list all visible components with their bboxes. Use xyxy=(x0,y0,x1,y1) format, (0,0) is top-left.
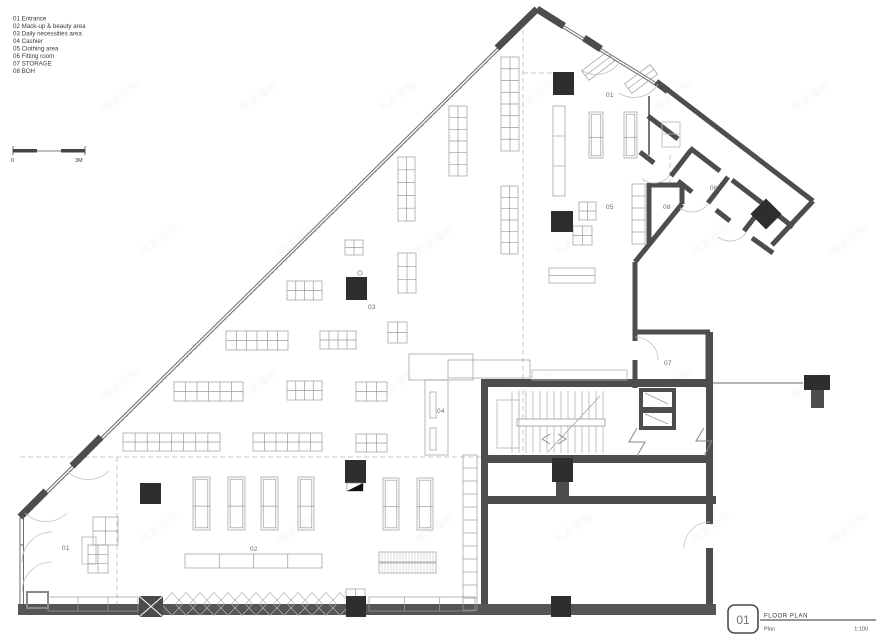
svg-text:知末案例: 知末案例 xyxy=(99,366,143,403)
svg-text:知末案例: 知末案例 xyxy=(99,78,143,115)
column-grid-dashed-lines xyxy=(20,22,670,605)
floor-plan-page: 知末案例知末案例知末案例知末案例知末案例知末案例知末案例知末案例知末案例知末案例… xyxy=(0,0,880,643)
svg-text:知末案例: 知末案例 xyxy=(237,78,281,115)
svg-text:知末案例: 知末案例 xyxy=(413,222,457,259)
room-label: 08 xyxy=(663,204,671,211)
title-block: 01 FLOOR PLAN Plan 1:100 xyxy=(728,605,876,633)
legend-item: 04 Cashier xyxy=(13,38,43,45)
legend-item: 01 Entrance xyxy=(13,16,47,23)
svg-text:知末案例: 知末案例 xyxy=(827,222,871,259)
drawing-subtitle: Plan xyxy=(764,627,775,633)
drawing-number: 01 xyxy=(736,613,750,627)
room-label: 01 xyxy=(62,545,70,552)
legend-item: 06 Fitting room xyxy=(13,53,54,60)
svg-text:知末案例: 知末案例 xyxy=(375,366,419,403)
svg-text:知末案例: 知末案例 xyxy=(551,510,595,547)
room-label: 06 xyxy=(710,185,718,192)
room-label: 07 xyxy=(664,360,672,367)
floor-plan-drawing: 知末案例知末案例知末案例知末案例知末案例知末案例知末案例知末案例知末案例知末案例… xyxy=(0,0,880,643)
room-label: 03 xyxy=(368,304,376,311)
room-label: 01 xyxy=(606,92,614,99)
scale-end-label: 3M xyxy=(75,158,83,164)
svg-text:知末案例: 知末案例 xyxy=(689,222,733,259)
svg-text:知末案例: 知末案例 xyxy=(137,510,181,547)
legend-item: 03 Daily necessities area xyxy=(13,31,82,38)
room-label: 05 xyxy=(606,204,614,211)
svg-text:知末案例: 知末案例 xyxy=(137,222,181,259)
legend-item: 05 Clothing area xyxy=(13,46,59,53)
legend-item: 02 Mack-up & beauty area xyxy=(13,23,86,30)
legend-item: 07 STORAGE xyxy=(13,61,52,68)
svg-text:知末案例: 知末案例 xyxy=(275,222,319,259)
room-label: 02 xyxy=(250,546,258,553)
svg-text:知末案例: 知末案例 xyxy=(375,78,419,115)
drawing-title: FLOOR PLAN xyxy=(764,614,808,620)
drawing-scale: 1:100 xyxy=(854,627,868,633)
legend: 01 Entrance 02 Mack-up & beauty area 03 … xyxy=(13,16,86,76)
room-label: 04 xyxy=(437,408,445,415)
svg-text:知末案例: 知末案例 xyxy=(789,78,833,115)
legend-item: 08 BOH xyxy=(13,68,35,75)
scale-bar: 0 3M xyxy=(11,146,85,164)
scale-start-label: 0 xyxy=(11,158,14,164)
svg-text:知末案例: 知末案例 xyxy=(275,510,319,547)
staircase xyxy=(497,391,605,453)
svg-text:知末案例: 知末案例 xyxy=(827,510,871,547)
